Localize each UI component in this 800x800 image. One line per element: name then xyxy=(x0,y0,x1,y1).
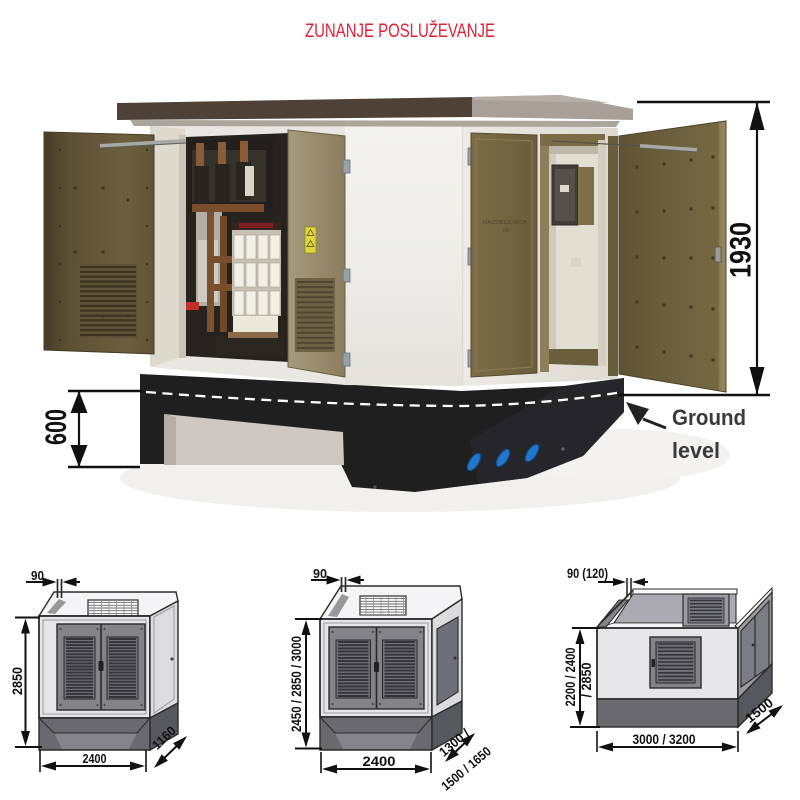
svg-text:2400: 2400 xyxy=(363,754,396,769)
svg-text:RAZDELILNICA: RAZDELILNICA xyxy=(483,220,527,226)
svg-text:90 (120): 90 (120) xyxy=(567,566,608,581)
svg-text:600: 600 xyxy=(40,409,73,445)
svg-text:ZUNANJE POSLUŽEVANJE: ZUNANJE POSLUŽEVANJE xyxy=(305,20,495,42)
svg-text:2200 / 2400: 2200 / 2400 xyxy=(563,648,578,707)
svg-text:2850: 2850 xyxy=(9,667,25,695)
svg-text:/ 2850: / 2850 xyxy=(579,663,594,698)
svg-text:3000 / 3200: 3000 / 3200 xyxy=(633,731,696,747)
svg-text:Ground: Ground xyxy=(672,405,746,430)
svg-text:90: 90 xyxy=(313,566,327,581)
svg-text:level: level xyxy=(672,438,720,463)
svg-text:2450 / 2850 / 3000: 2450 / 2850 / 3000 xyxy=(289,636,304,732)
svg-text:90: 90 xyxy=(31,568,44,583)
svg-text:2400: 2400 xyxy=(83,751,107,766)
svg-text:JN: JN xyxy=(502,228,509,234)
svg-text:1930: 1930 xyxy=(725,222,758,278)
